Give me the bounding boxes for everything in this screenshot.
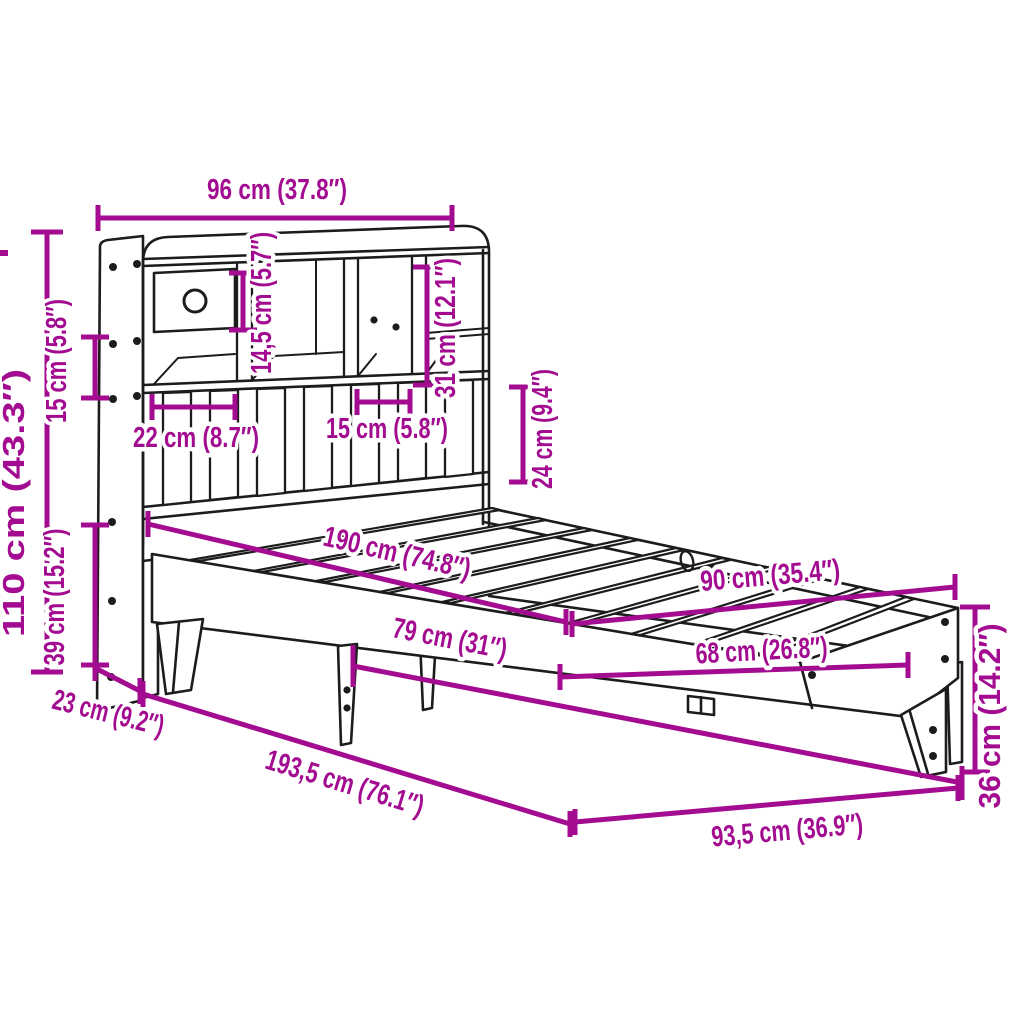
dim-label-total-height: 110 cm (43.3″) — [0, 369, 31, 637]
dim-label-frame-height: 36 cm (14.2″) — [972, 624, 1007, 809]
dimension-headboard-width: 96 cm (37.8″) — [98, 174, 452, 231]
dimension-diagram: 96 cm (37.8″) 110 cm (43.3″) 15 cm (5.8″… — [0, 0, 1024, 1024]
headboard-side-panel — [97, 236, 143, 711]
dim-label-headboard-width: 96 cm (37.8″) — [207, 174, 347, 206]
dim-label-shelf-total-height: 31 cm (12.1″) — [430, 258, 462, 398]
dim-label-panel-height: 24 cm (9.4″) — [527, 369, 559, 489]
headboard-drawer — [154, 269, 235, 332]
bed-frame-artwork — [97, 226, 962, 777]
dimension-total-length: 193,5 cm (76.1″) — [143, 681, 570, 837]
bed-frame-diagram-canvas: 96 cm (37.8″) 110 cm (43.3″) 15 cm (5.8″… — [0, 0, 1024, 1024]
dim-label-total-width: 93,5 cm (36.9″) — [710, 808, 864, 853]
dimension-panel-height: 24 cm (9.4″) — [509, 369, 559, 489]
dim-label-shelf-gap-height: 15 cm (5.8″) — [41, 299, 73, 423]
edge-serif-top — [0, 250, 8, 256]
dim-label-compartment-height: 14,5 cm (5.7″) — [246, 232, 278, 374]
dim-label-underbed-height: 39 cm (15.2″) — [39, 529, 71, 666]
dimension-total-width: 93,5 cm (36.9″) — [575, 775, 958, 854]
headboard-end-leg — [157, 619, 203, 694]
dim-label-compartment-width-small: 15 cm (5.8″) — [326, 413, 448, 445]
dimension-frame-height: 36 cm (14.2″) — [960, 607, 1007, 809]
dim-label-compartment-width-large: 22 cm (8.7″) — [133, 422, 259, 454]
